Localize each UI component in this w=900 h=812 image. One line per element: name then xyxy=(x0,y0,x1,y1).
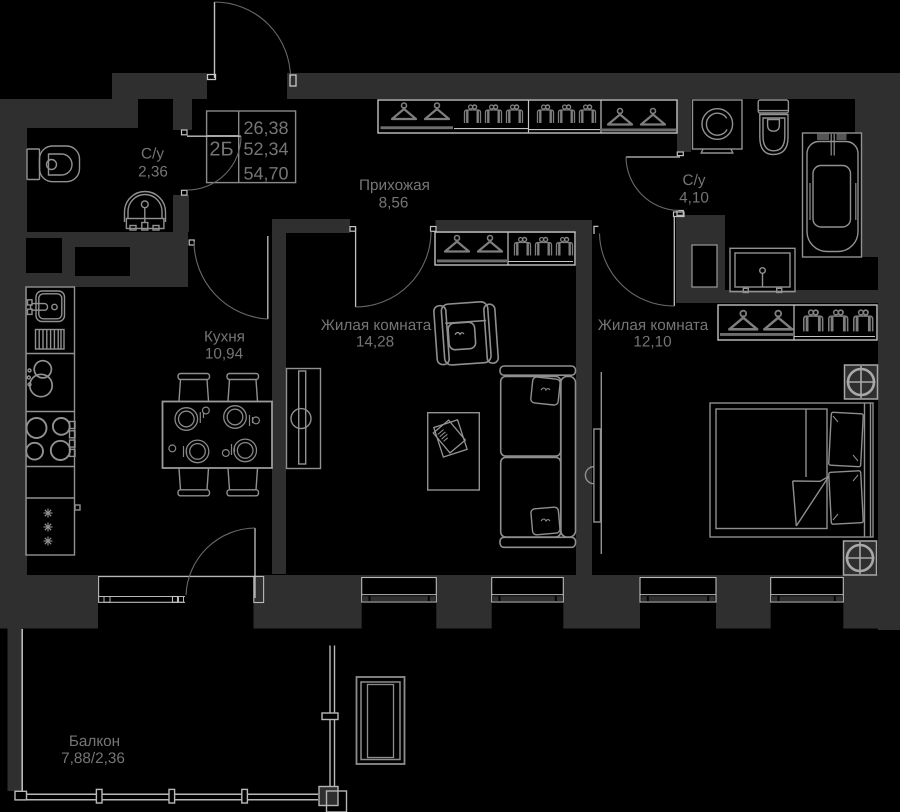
svg-text:Кухня: Кухня xyxy=(204,329,245,346)
svg-text:14,28: 14,28 xyxy=(356,334,394,351)
svg-text:12,10: 12,10 xyxy=(633,334,671,351)
svg-text:С/у: С/у xyxy=(141,146,164,163)
svg-text:Прихожая: Прихожая xyxy=(359,177,430,194)
svg-text:8,56: 8,56 xyxy=(379,195,409,212)
svg-text:54,70: 54,70 xyxy=(243,164,288,184)
svg-text:10,94: 10,94 xyxy=(205,346,244,363)
svg-text:С/у: С/у xyxy=(683,172,706,189)
svg-text:2Б: 2Б xyxy=(209,139,233,161)
svg-text:Жилая комната: Жилая комната xyxy=(598,317,709,334)
svg-text:52,34: 52,34 xyxy=(243,139,288,159)
svg-text:2,36: 2,36 xyxy=(138,164,168,181)
svg-text:26,38: 26,38 xyxy=(243,118,288,138)
svg-text:7,88/2,36: 7,88/2,36 xyxy=(61,750,125,767)
svg-text:4,10: 4,10 xyxy=(679,190,709,207)
svg-text:Жилая комната: Жилая комната xyxy=(321,317,432,334)
svg-text:Балкон: Балкон xyxy=(69,733,120,750)
